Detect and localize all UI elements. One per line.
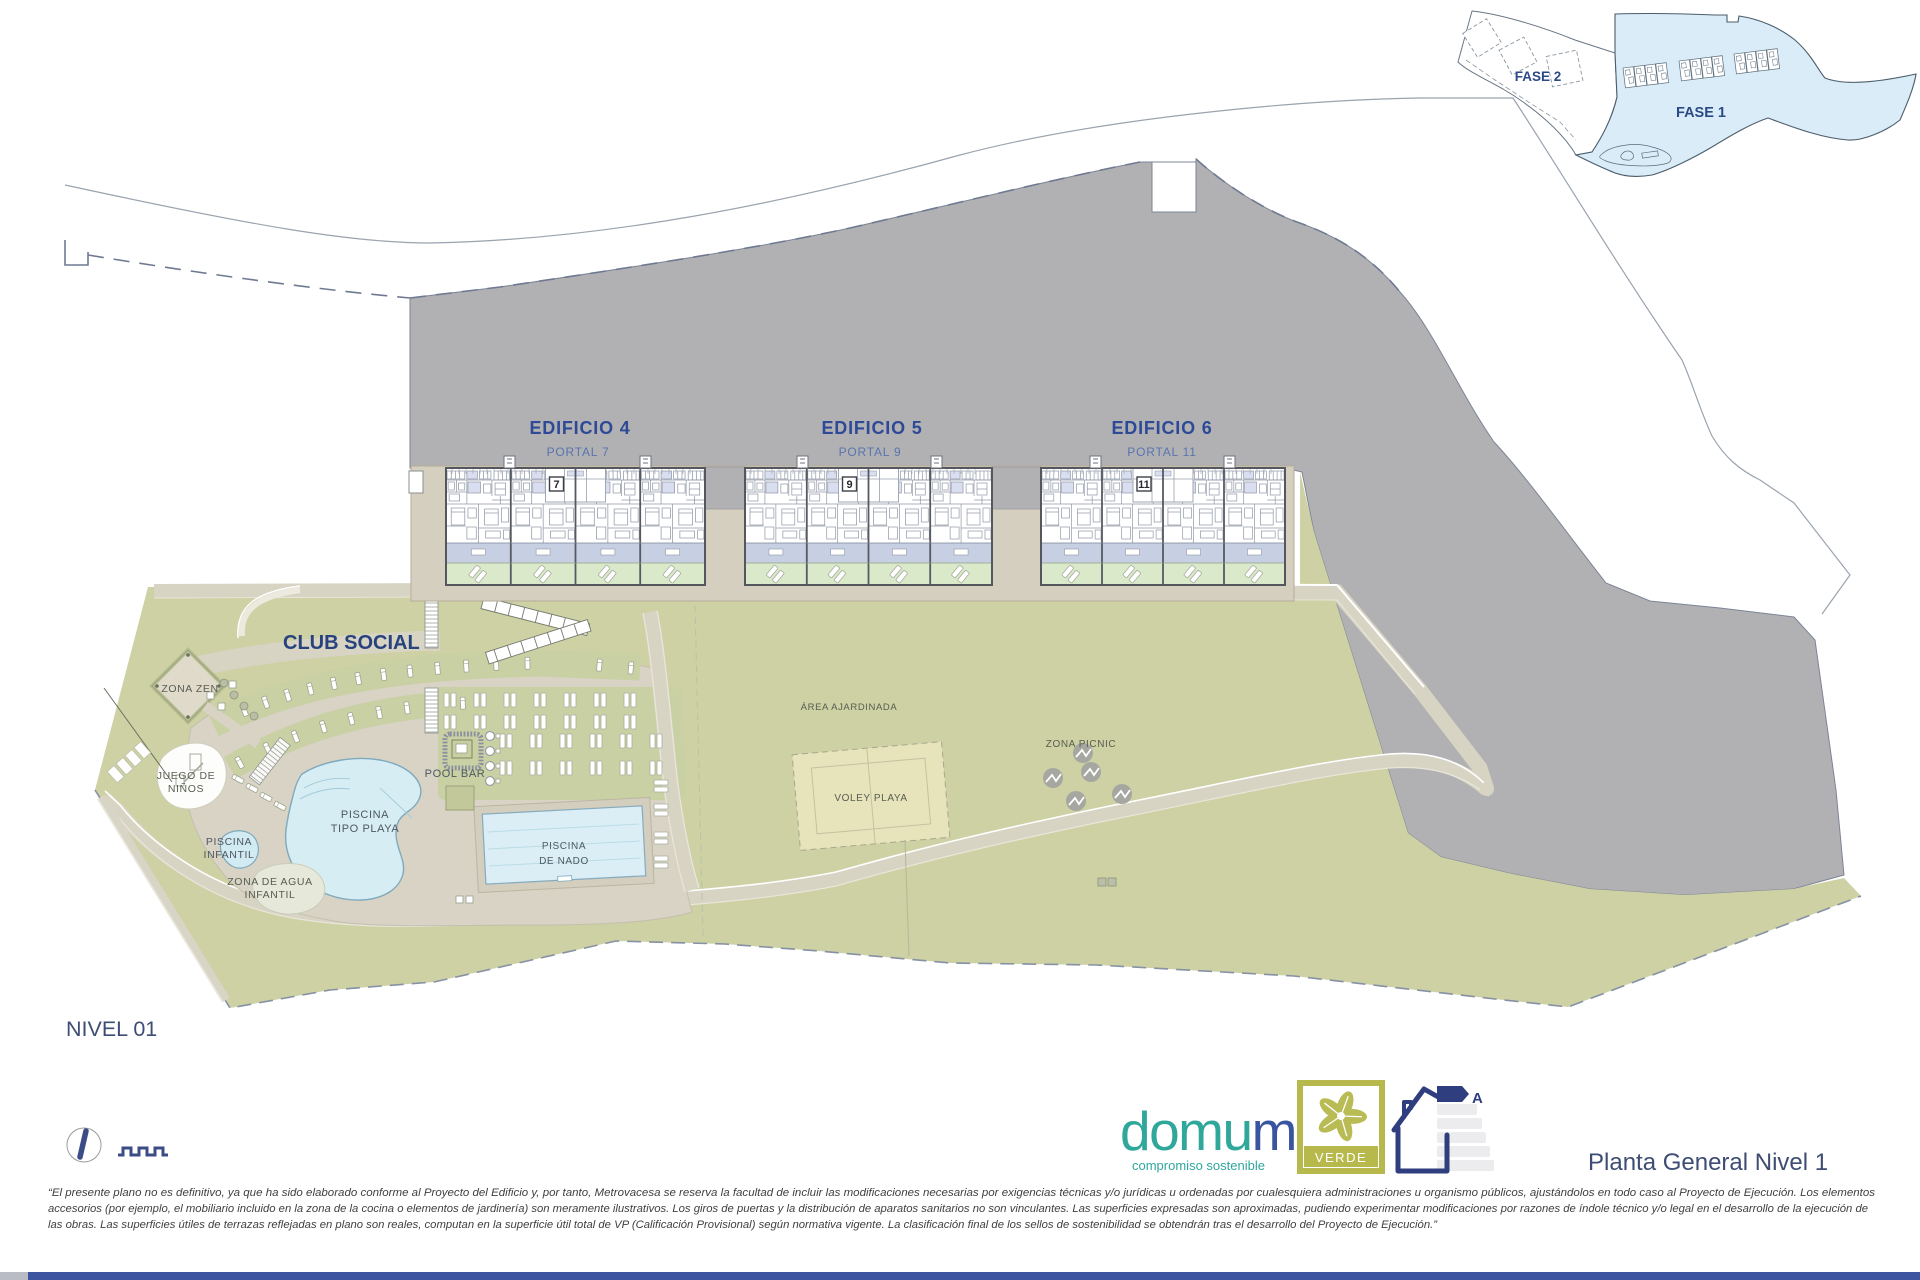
- svg-text:PISCINA: PISCINA: [341, 809, 389, 821]
- svg-text:A: A: [1472, 1090, 1483, 1107]
- svg-text:NIÑOS: NIÑOS: [168, 782, 204, 795]
- svg-text:POOL BAR: POOL BAR: [425, 768, 486, 780]
- svg-text:11: 11: [1138, 479, 1150, 491]
- svg-text:PORTAL 11: PORTAL 11: [1127, 445, 1196, 459]
- svg-text:domum: domum: [1120, 1100, 1296, 1162]
- svg-text:VOLEY PLAYA: VOLEY PLAYA: [834, 793, 907, 804]
- svg-text:PISCINA: PISCINA: [206, 836, 252, 848]
- svg-text:DE NADO: DE NADO: [539, 856, 589, 867]
- svg-text:CLUB SOCIAL: CLUB SOCIAL: [283, 632, 420, 654]
- svg-text:9: 9: [846, 479, 852, 491]
- svg-text:INFANTIL: INFANTIL: [245, 889, 296, 901]
- svg-text:EDIFICIO 4: EDIFICIO 4: [529, 418, 630, 438]
- svg-text:EDIFICIO 5: EDIFICIO 5: [821, 418, 922, 438]
- svg-text:“El presente plano no es defin: “El presente plano no es definitivo, ya …: [48, 1187, 1876, 1199]
- svg-text:FASE 2: FASE 2: [1515, 69, 1562, 84]
- svg-text:PORTAL 9: PORTAL 9: [839, 445, 902, 459]
- svg-text:7: 7: [553, 479, 559, 491]
- svg-text:JUEGO DE: JUEGO DE: [157, 770, 215, 782]
- svg-text:PISCINA: PISCINA: [542, 841, 586, 852]
- svg-text:ZONA DE AGUA: ZONA DE AGUA: [227, 876, 312, 888]
- svg-text:ZONA ZEN: ZONA ZEN: [161, 683, 218, 695]
- svg-text:compromiso sostenible: compromiso sostenible: [1132, 1158, 1265, 1173]
- svg-text:FASE 1: FASE 1: [1676, 105, 1726, 121]
- svg-text:EDIFICIO 6: EDIFICIO 6: [1111, 418, 1212, 438]
- svg-text:TIPO PLAYA: TIPO PLAYA: [331, 823, 400, 835]
- svg-text:Planta General Nivel 1: Planta General Nivel 1: [1588, 1149, 1828, 1176]
- svg-text:PORTAL 7: PORTAL 7: [547, 445, 610, 459]
- svg-text:accesorios (por ejemplo, el mo: accesorios (por ejemplo, el mobiliario i…: [48, 1203, 1868, 1215]
- svg-text:NIVEL 01: NIVEL 01: [66, 1017, 157, 1041]
- svg-text:las obras. Las superficies úti: las obras. Las superficies útiles de ter…: [48, 1219, 1438, 1231]
- svg-text:VERDE: VERDE: [1315, 1150, 1367, 1165]
- svg-text:INFANTIL: INFANTIL: [204, 849, 255, 861]
- svg-text:ZONA PICNIC: ZONA PICNIC: [1046, 739, 1117, 750]
- svg-text:ÁREA AJARDINADA: ÁREA AJARDINADA: [801, 702, 898, 713]
